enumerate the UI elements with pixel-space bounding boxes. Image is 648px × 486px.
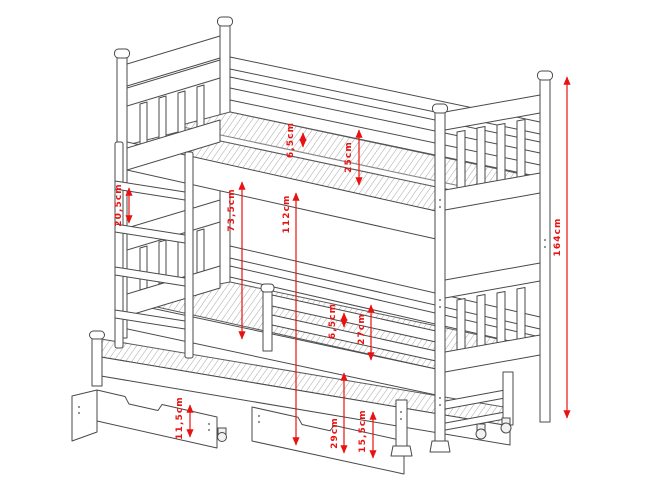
dim-label-trundle-frame-height: 15,5cm [358,409,368,453]
dim-label-bottom-bunk-guard-height: 27cm [357,313,367,345]
dim-label-drawer-front-height: 11,5cm [175,396,185,440]
bunk-bed-technical-drawing: 6,5cm 25cm 20,5cm 73,5cm 112cm 164cm 6,5… [0,0,648,486]
trundle-caster-left [476,424,486,439]
drawer-left-caster [218,428,227,442]
upper-footboard [445,95,540,210]
dim-label-overall-height: 164cm [553,218,563,257]
drawing-canvas: 6,5cm 25cm 20,5cm 73,5cm 112cm 164cm 6,5… [0,0,648,486]
drawer-left [72,390,227,448]
dim-label-top-bunk-guard-height: 25cm [344,141,354,173]
dim-label-bottom-bunk-slat-thickness: 6,5cm [328,303,338,339]
dim-label-trundle-platform-height: 29cm [330,417,340,449]
dim-label-top-bunk-slat-thickness: 6,5cm [286,122,296,158]
dim-label-top-bunk-underside-height: 112cm [282,195,292,234]
dim-overall-height: 164cm [553,77,567,418]
dim-label-ladder-rung-spacing: 20,5cm [114,183,124,227]
dim-label-bunk-clearance: 73,5cm [227,188,237,232]
trundle-caster-right [501,418,511,433]
